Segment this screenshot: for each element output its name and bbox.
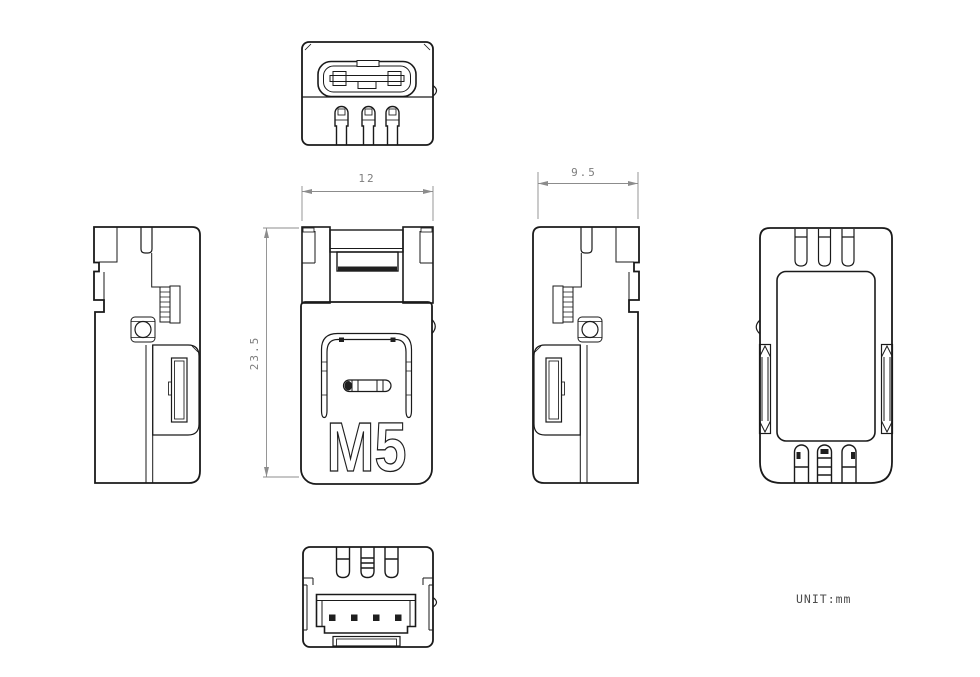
- rail-body: [882, 345, 893, 434]
- dimension-width-value: 12: [358, 172, 375, 185]
- top-vent-slots: [795, 229, 854, 266]
- pogo-prong: [386, 107, 399, 145]
- grove-pins: [329, 615, 402, 622]
- body-divider-lines: [146, 345, 153, 483]
- usb-c-tongue: [330, 76, 404, 82]
- dimension-width-lines: [302, 186, 433, 221]
- usb-c-center-contact: [358, 82, 376, 89]
- pogo-prong-detail: [797, 452, 801, 459]
- grove-pin: [395, 615, 402, 622]
- bottom-view-outline: [303, 547, 433, 647]
- usb-c-clip-left: [333, 72, 346, 86]
- drawing-svg: M5: [0, 0, 980, 677]
- side-view-outline: [94, 227, 200, 483]
- corner-chamfer-marks: [305, 44, 430, 50]
- vent-slot: [819, 229, 831, 266]
- side-slot-inner: [175, 361, 185, 419]
- arrow-right-icon: [423, 189, 433, 194]
- usb-c-top-notch: [357, 61, 379, 67]
- arrow-left-icon: [302, 189, 312, 194]
- shield-tab-left: [302, 227, 330, 303]
- pogo-prong: [842, 445, 856, 483]
- arrow-left-icon: [538, 181, 548, 186]
- bracket-left: [303, 578, 313, 630]
- pogo-prong-detail: [389, 109, 396, 115]
- grove-pin: [351, 615, 358, 622]
- usb-c-side-ribs: [160, 292, 170, 317]
- side-button: [135, 322, 151, 338]
- frame-corner-mark-right: [391, 338, 396, 343]
- arrow-right-icon: [628, 181, 638, 186]
- unit-note: UNIT:mm: [796, 592, 851, 606]
- usb-c-front-lower-band: [338, 267, 397, 272]
- pogo-prong: [335, 107, 348, 145]
- rail-detail: [882, 346, 893, 432]
- usb-c-clip-right: [388, 72, 401, 86]
- pogo-prong: [362, 107, 375, 145]
- button-frame: [322, 334, 412, 418]
- grove-pin: [329, 615, 336, 622]
- vent-slot: [842, 229, 854, 266]
- m5-logo: M5: [327, 408, 407, 486]
- button-frame-ticks: [322, 362, 412, 395]
- bracket-right: [423, 578, 433, 630]
- pogo-prong-detail: [851, 452, 855, 459]
- pogo-prong: [361, 547, 374, 578]
- shield-tab-right-step: [420, 231, 433, 263]
- connector-base-plate: [333, 637, 400, 647]
- pogo-prong: [795, 445, 809, 483]
- side-slot-outer: [172, 358, 188, 422]
- shield-tab-left-step: [302, 231, 315, 263]
- pogo-prong: [385, 547, 398, 578]
- shield-tab-right: [403, 227, 433, 303]
- shield-tab-right-lip: [421, 228, 432, 232]
- usb-c-side-body: [170, 286, 180, 323]
- back-view: [756, 228, 892, 483]
- rail-body: [760, 345, 771, 434]
- led-window-cap: [345, 381, 353, 391]
- dimension-height-value: 23.5: [248, 336, 261, 371]
- pogo-prong: [337, 547, 350, 578]
- dimension-width: 12: [302, 172, 433, 221]
- grove-pin: [373, 615, 380, 622]
- vent-slot: [795, 229, 807, 266]
- top-view: [302, 42, 437, 145]
- led-window-segments: [352, 380, 383, 392]
- shield-shelf-line: [152, 253, 160, 287]
- mounting-rail-left: [760, 345, 771, 434]
- bottom-view: [303, 547, 437, 647]
- dimension-height: 23.5: [248, 228, 299, 477]
- rail-detail: [760, 346, 771, 432]
- left-side-view: [94, 227, 200, 483]
- pogo-prongs-bottom-view: [337, 547, 399, 578]
- top-notch-slot: [141, 227, 152, 253]
- label-area: [777, 272, 875, 442]
- pogo-prongs-top-view: [335, 107, 399, 145]
- dimension-depth-value: 9.5: [571, 166, 597, 179]
- dimension-drawing-canvas: M5: [0, 0, 980, 677]
- mounting-rail-right: [882, 345, 893, 434]
- frame-corner-mark-left: [339, 338, 344, 343]
- dimension-height-lines: [263, 228, 299, 477]
- grove-connector-inner: [317, 601, 416, 627]
- pogo-prong-detail: [338, 109, 345, 115]
- dimension-depth: 9.5: [538, 166, 638, 219]
- dimension-depth-lines: [538, 172, 638, 219]
- shield-step-profile: [99, 227, 117, 300]
- arrow-up-icon: [264, 228, 269, 238]
- pogo-prong-detail: [821, 449, 829, 454]
- front-view: M5: [301, 227, 435, 486]
- connector-base-plate-inner: [337, 639, 397, 646]
- right-side-view: [533, 227, 639, 483]
- arrow-down-icon: [264, 467, 269, 477]
- pogo-prong-detail: [365, 109, 372, 115]
- shield-tab-left-lip: [303, 228, 314, 232]
- pogo-prongs-back-view: [795, 445, 857, 483]
